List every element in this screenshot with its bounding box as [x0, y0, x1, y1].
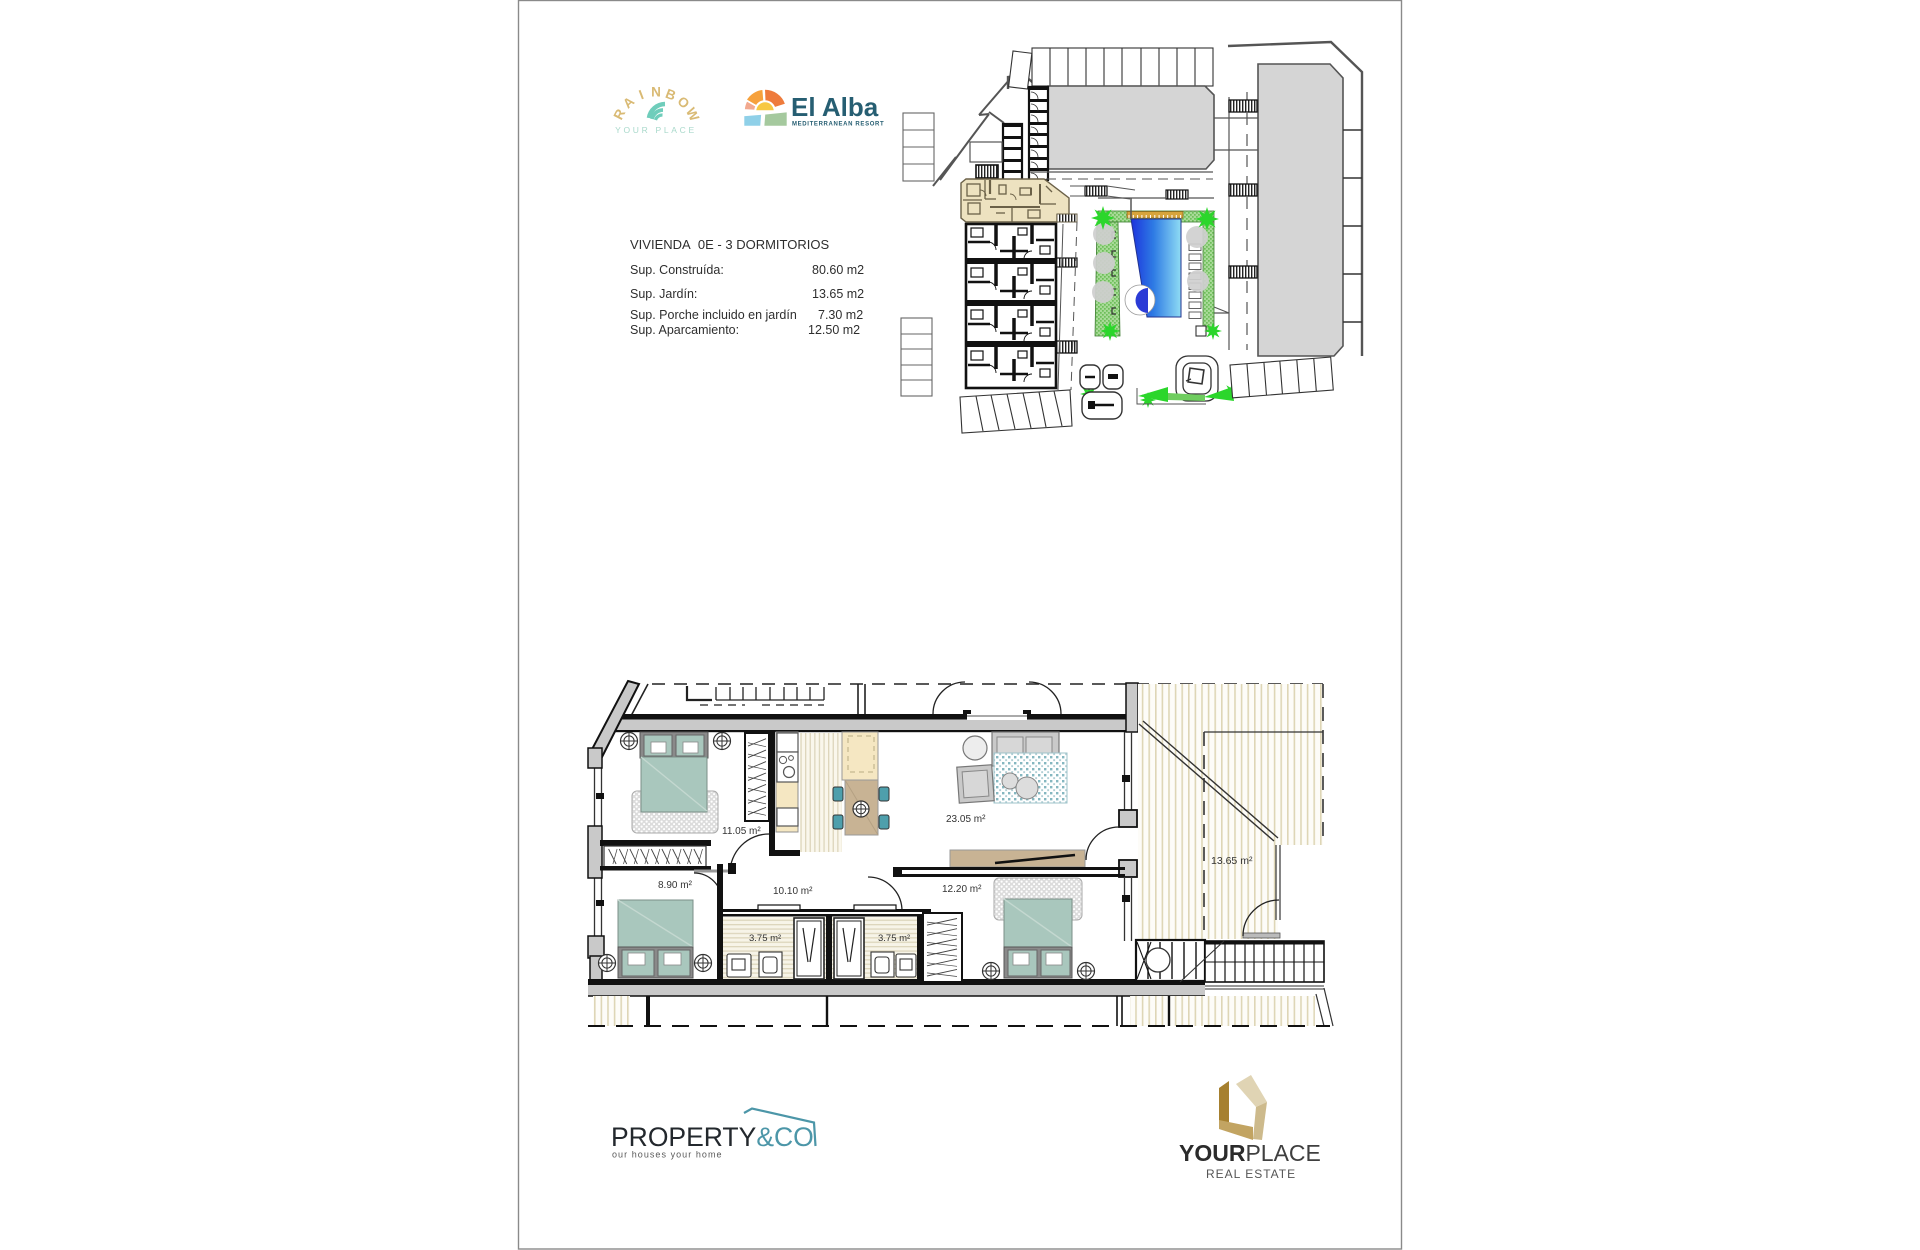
svg-text:YOUR PLACE: YOUR PLACE	[615, 125, 697, 135]
svg-text:80.60 m2: 80.60 m2	[812, 263, 864, 277]
svg-text:11.05 m²: 11.05 m²	[722, 826, 761, 837]
svg-text:YOURPLACE: YOURPLACE	[1179, 1140, 1321, 1166]
svg-text:3.75 m²: 3.75 m²	[749, 933, 781, 944]
svg-text:13.65 m²: 13.65 m²	[1211, 855, 1253, 867]
svg-text:Sup. Construída:: Sup. Construída:	[630, 263, 724, 277]
svg-text:13.65 m2: 13.65 m2	[812, 287, 864, 301]
svg-text:MEDITERRANEAN RESORT: MEDITERRANEAN RESORT	[792, 122, 884, 128]
svg-text:10.10 m²: 10.10 m²	[773, 886, 813, 897]
svg-text:VIVIENDA 0E - 3 DORMITORIOS: VIVIENDA 0E - 3 DORMITORIOS	[630, 237, 829, 252]
svg-text:our houses your home: our houses your home	[612, 1150, 723, 1160]
svg-text:Sup. Porche incluido en jardín: Sup. Porche incluido en jardín	[630, 308, 797, 322]
svg-text:Sup. Aparcamiento:: Sup. Aparcamiento:	[630, 323, 739, 337]
svg-text:PROPERTY&CO: PROPERTY&CO	[611, 1122, 814, 1152]
svg-text:23.05 m²: 23.05 m²	[946, 814, 986, 825]
svg-text:3.75 m²: 3.75 m²	[878, 933, 910, 944]
svg-text:REAL ESTATE: REAL ESTATE	[1206, 1167, 1296, 1181]
svg-text:12.50 m2: 12.50 m2	[808, 323, 860, 337]
svg-text:Sup. Jardín:: Sup. Jardín:	[630, 287, 697, 301]
svg-text:8.90 m²: 8.90 m²	[658, 880, 693, 891]
svg-text:7.30 m2: 7.30 m2	[818, 308, 863, 322]
svg-text:N: N	[651, 85, 661, 100]
svg-text:El Alba: El Alba	[791, 92, 879, 122]
svg-text:12.20 m²: 12.20 m²	[942, 884, 982, 895]
